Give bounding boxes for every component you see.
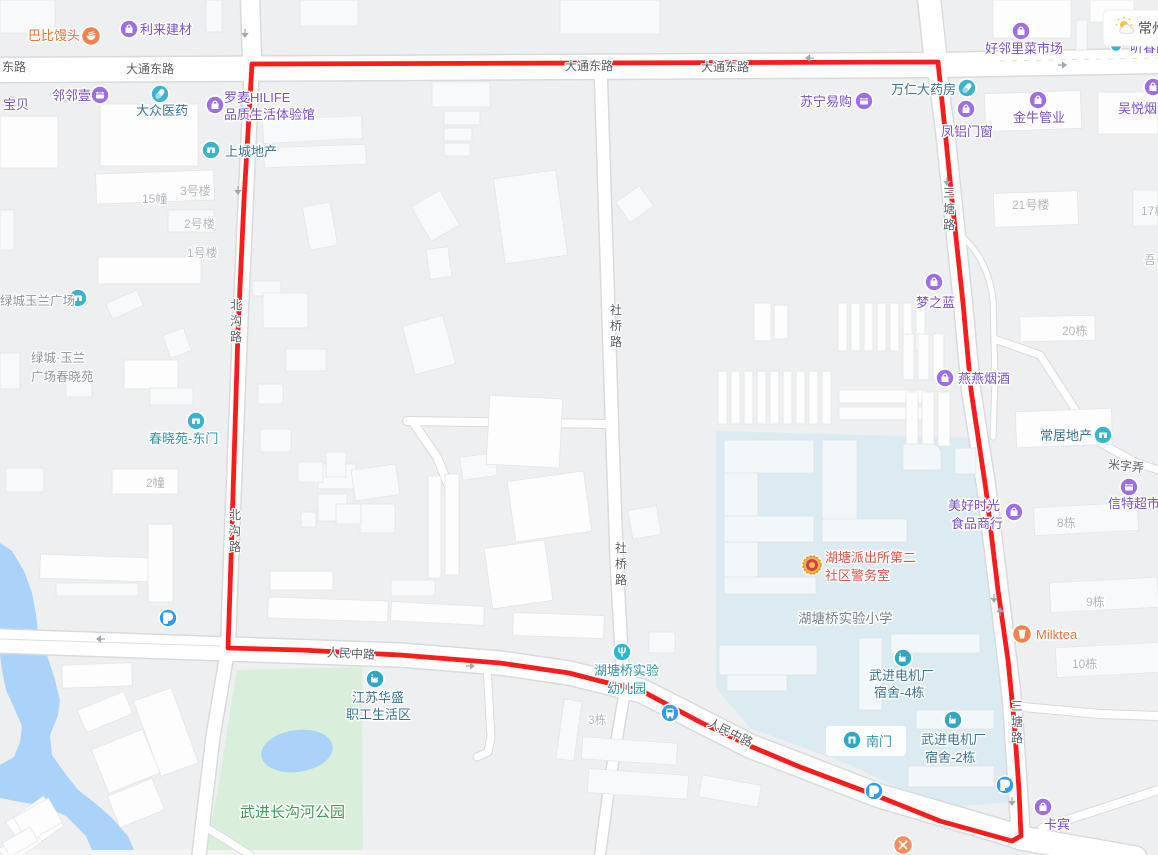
svg-text:常州: 常州 <box>1138 20 1158 36</box>
svg-text:好邻里菜市场: 好邻里菜市场 <box>985 41 1063 56</box>
svg-text:吾: 吾 <box>1144 253 1156 267</box>
svg-text:大通东路: 大通东路 <box>565 58 613 73</box>
svg-text:苏宁易购: 苏宁易购 <box>800 94 852 109</box>
svg-text:湖塘派出所第二: 湖塘派出所第二 <box>825 550 916 565</box>
svg-text:巴比馒头: 巴比馒头 <box>28 28 80 43</box>
svg-text:宿舍-4栋: 宿舍-4栋 <box>874 685 925 700</box>
svg-text:利来建材: 利来建材 <box>140 22 192 37</box>
svg-text:北沟路: 北沟路 <box>229 508 241 554</box>
svg-text:1号楼: 1号楼 <box>187 245 218 260</box>
svg-text:金牛管业: 金牛管业 <box>1013 110 1065 125</box>
svg-text:9栋: 9栋 <box>1086 594 1105 609</box>
svg-text:邻邻壹: 邻邻壹 <box>52 88 91 103</box>
svg-text:常居地产: 常居地产 <box>1040 428 1092 443</box>
svg-text:3栋: 3栋 <box>588 712 607 727</box>
svg-text:15幢: 15幢 <box>142 191 167 206</box>
svg-text:广场春晓苑: 广场春晓苑 <box>31 370 94 384</box>
svg-text:大通东路: 大通东路 <box>126 61 174 76</box>
svg-text:21号楼: 21号楼 <box>1012 197 1049 212</box>
svg-text:社桥路: 社桥路 <box>610 302 622 349</box>
svg-text:品质生活体验馆: 品质生活体验馆 <box>224 107 315 122</box>
svg-text:2号楼: 2号楼 <box>184 216 215 231</box>
svg-text:万仁大药房: 万仁大药房 <box>891 82 956 97</box>
svg-text:3号楼: 3号楼 <box>180 183 211 198</box>
svg-text:17栋: 17栋 <box>1141 203 1158 218</box>
svg-text:湖塘桥实验小学: 湖塘桥实验小学 <box>798 611 893 626</box>
svg-text:10栋: 10栋 <box>1072 656 1097 671</box>
svg-text:燕燕烟酒: 燕燕烟酒 <box>958 371 1010 386</box>
svg-text:宝贝: 宝贝 <box>3 97 29 112</box>
svg-text:梦之蓝: 梦之蓝 <box>916 295 955 310</box>
svg-text:大通东路: 大通东路 <box>701 59 749 74</box>
svg-text:凤铝门窗: 凤铝门窗 <box>941 124 993 139</box>
svg-text:武进电机厂: 武进电机厂 <box>921 732 986 747</box>
svg-text:东路: 东路 <box>2 59 26 74</box>
svg-text:食品商行: 食品商行 <box>951 516 1003 531</box>
svg-text:美好时光: 美好时光 <box>948 498 1000 513</box>
svg-text:春晓苑-东门: 春晓苑-东门 <box>149 431 218 446</box>
svg-text:罗麦HILIFE: 罗麦HILIFE <box>224 90 291 105</box>
svg-text:社桥路: 社桥路 <box>615 540 627 587</box>
svg-text:武进电机厂: 武进电机厂 <box>869 668 934 683</box>
svg-text:20栋: 20栋 <box>1062 323 1087 338</box>
svg-text:社区警务室: 社区警务室 <box>825 568 890 583</box>
svg-text:宿舍-2栋: 宿舍-2栋 <box>925 750 976 765</box>
svg-text:2幢: 2幢 <box>146 475 165 490</box>
svg-text:幼儿园: 幼儿园 <box>607 681 646 696</box>
svg-text:人民中路: 人民中路 <box>327 644 376 661</box>
svg-text:湖塘桥实验: 湖塘桥实验 <box>594 663 659 678</box>
svg-text:8栋: 8栋 <box>1057 515 1076 530</box>
svg-text:卡宾: 卡宾 <box>1044 817 1070 832</box>
svg-text:武进长沟河公园: 武进长沟河公园 <box>240 804 345 821</box>
svg-text:江苏华盛: 江苏华盛 <box>352 690 404 705</box>
svg-text:上城地产: 上城地产 <box>225 144 277 159</box>
svg-text:信特超市: 信特超市 <box>1108 496 1158 511</box>
svg-text:南门: 南门 <box>866 734 892 749</box>
svg-text:北沟路: 北沟路 <box>230 298 242 344</box>
svg-text:三塘路: 三塘路 <box>1011 699 1023 745</box>
svg-text:大众医药: 大众医药 <box>136 103 188 118</box>
svg-text:职工生活区: 职工生活区 <box>346 707 411 722</box>
svg-text:三塘路: 三塘路 <box>943 186 955 232</box>
svg-text:绿城·玉兰: 绿城·玉兰 <box>31 350 85 365</box>
svg-text:Milktea: Milktea <box>1036 627 1078 642</box>
svg-text:吴悦烟酒: 吴悦烟酒 <box>1118 101 1158 116</box>
svg-text:绿城玉兰广场: 绿城玉兰广场 <box>0 293 75 308</box>
